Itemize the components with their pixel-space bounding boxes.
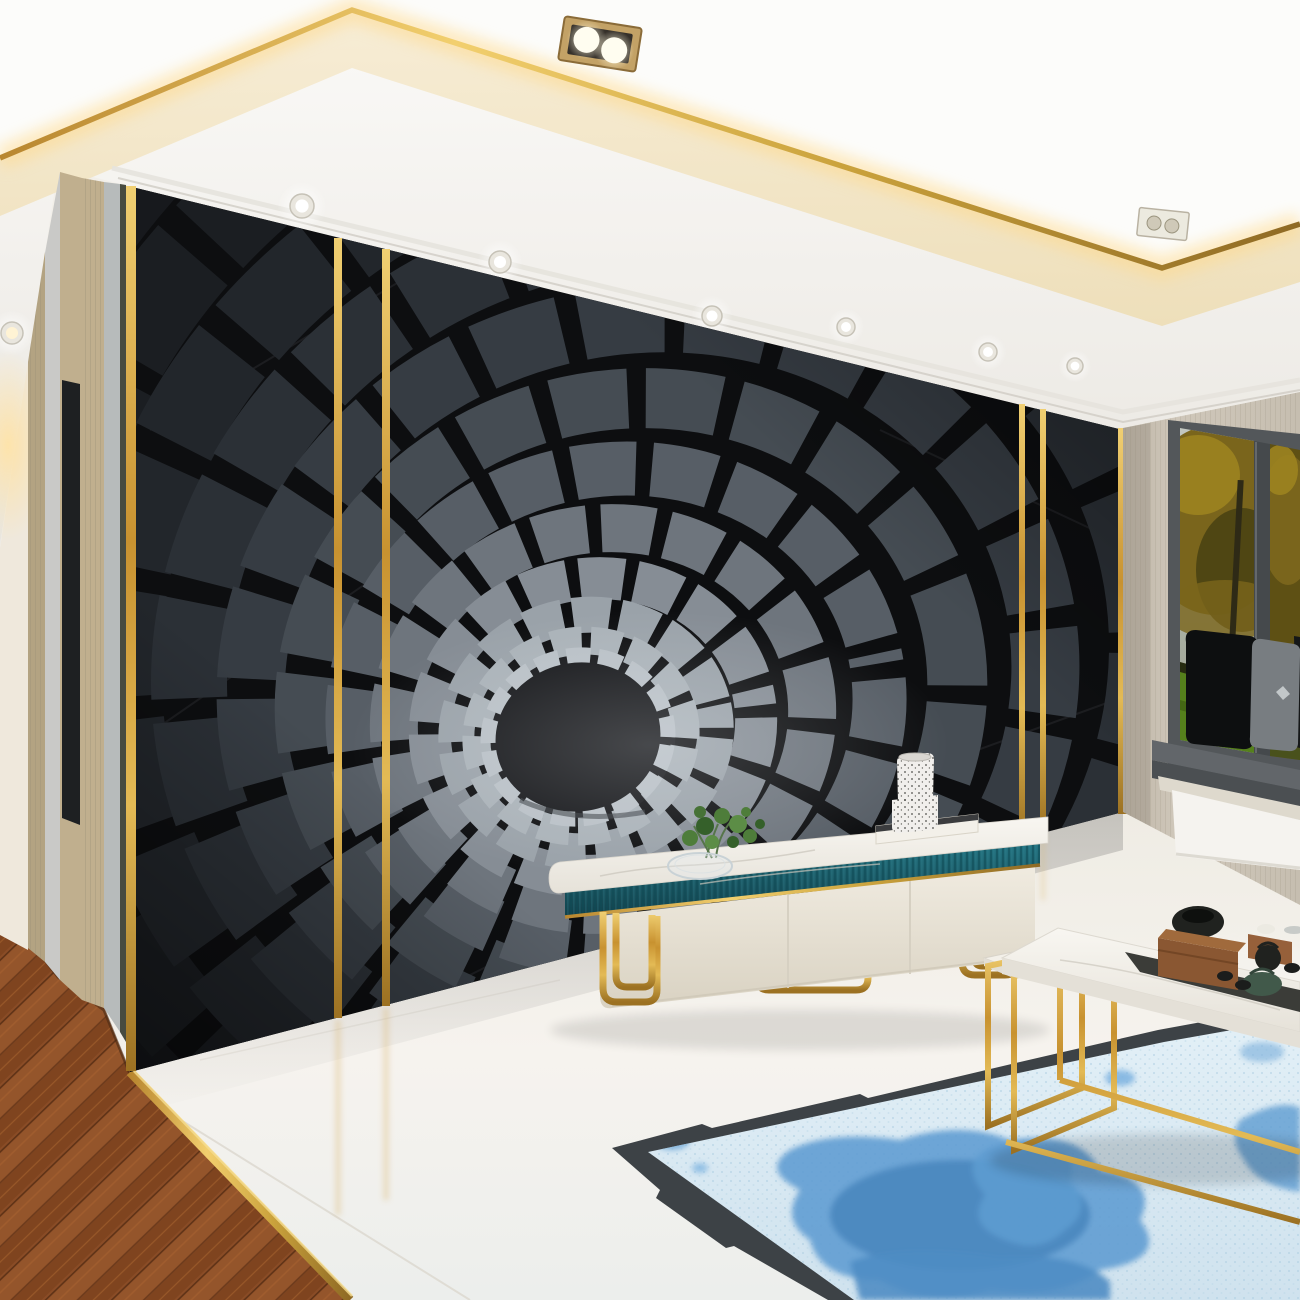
black-pillow	[1186, 630, 1259, 749]
recessed-downlight	[277, 181, 327, 231]
recessed-downlight	[827, 308, 865, 346]
tissue	[1257, 924, 1275, 934]
recessed-downlight	[969, 333, 1007, 371]
gray-pillow	[1250, 639, 1300, 751]
teacup	[1235, 980, 1251, 990]
gold-strip	[126, 186, 136, 1071]
glass-bowl	[668, 853, 732, 879]
gray-panel	[45, 172, 60, 980]
living-room-scene	[0, 0, 1300, 1300]
teacup	[1217, 971, 1233, 981]
teacup	[1284, 963, 1300, 973]
door-opening	[62, 380, 80, 825]
terrazzo-vase	[892, 753, 938, 833]
wall-shadow-edge	[1123, 423, 1150, 826]
spotlight-fixture-small	[1137, 207, 1190, 240]
gold-strip	[334, 238, 342, 1018]
gray-panel	[104, 182, 120, 1032]
gold-strip	[1040, 409, 1046, 833]
gold-strip	[1019, 404, 1025, 839]
dark-panel-edge	[120, 184, 126, 1042]
gold-strip	[382, 249, 390, 1006]
console-shadow	[550, 1010, 1050, 1050]
recessed-downlight	[1058, 349, 1092, 383]
